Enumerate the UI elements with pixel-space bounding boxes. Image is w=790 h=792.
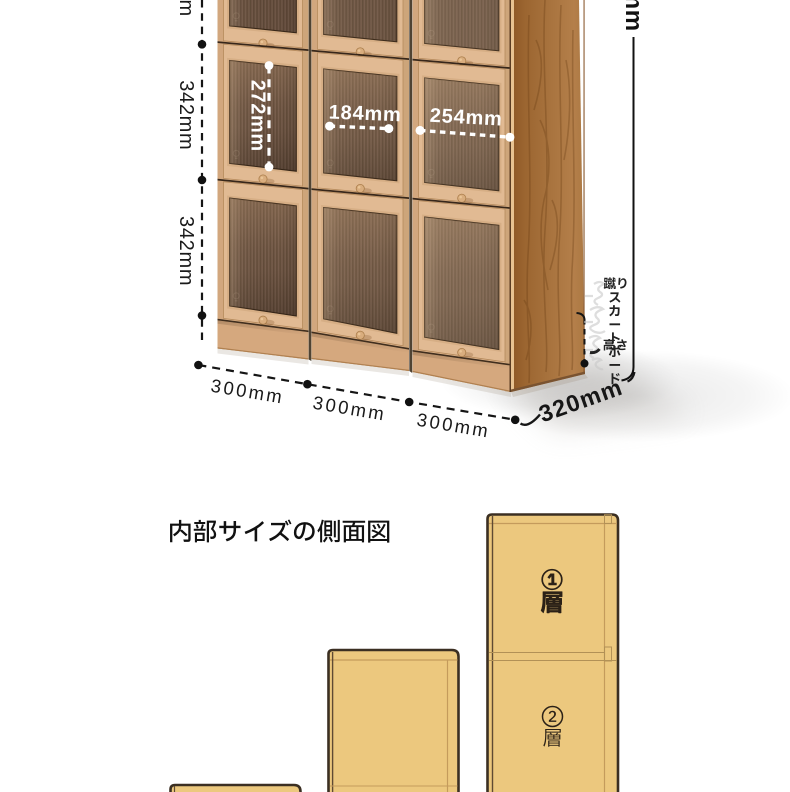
svg-text:m: m: [175, 0, 197, 16]
svg-text:342mm: 342mm: [175, 80, 197, 150]
svg-text:342mm: 342mm: [175, 216, 197, 286]
svg-text:184mm: 184mm: [328, 102, 402, 127]
svg-text:mm: mm: [620, 0, 647, 32]
svg-text:272mm: 272mm: [247, 80, 269, 152]
svg-text:254mm: 254mm: [429, 105, 503, 131]
